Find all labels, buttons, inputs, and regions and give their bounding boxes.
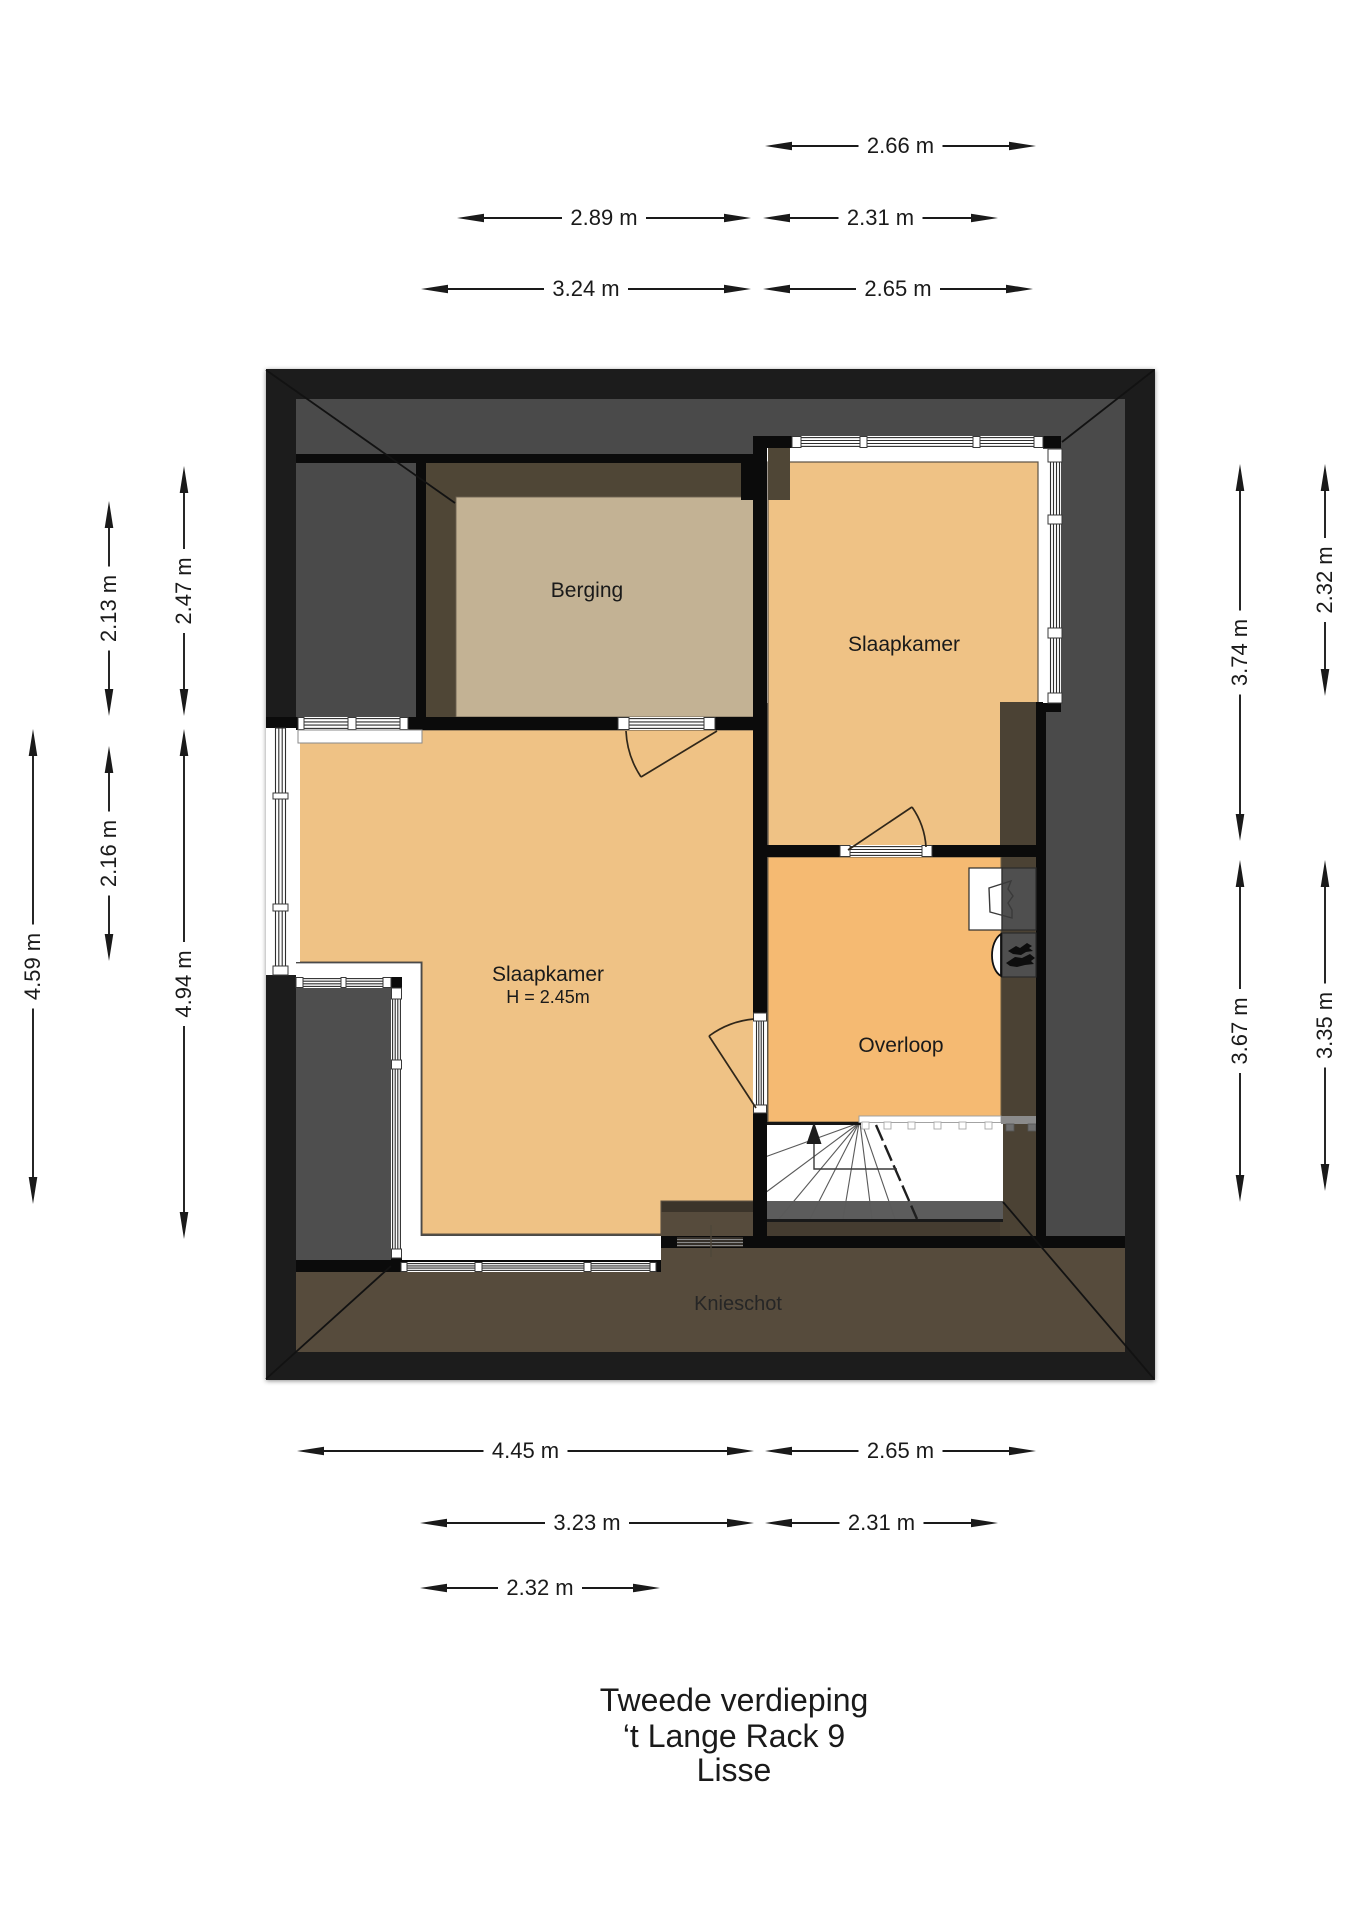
svg-text:H = 2.45m: H = 2.45m (506, 987, 590, 1007)
svg-text:2.65 m: 2.65 m (867, 1438, 934, 1463)
svg-text:Lisse: Lisse (697, 1752, 772, 1788)
svg-text:4.45 m: 4.45 m (492, 1438, 559, 1463)
svg-text:3.23 m: 3.23 m (553, 1510, 620, 1535)
svg-text:3.74 m: 3.74 m (1227, 619, 1252, 686)
svg-text:4.59 m: 4.59 m (20, 933, 45, 1000)
svg-text:2.32 m: 2.32 m (1312, 546, 1337, 613)
svg-text:2.65 m: 2.65 m (864, 276, 931, 301)
svg-text:Tweede verdieping: Tweede verdieping (600, 1682, 869, 1718)
svg-text:‘t Lange Rack 9: ‘t Lange Rack 9 (623, 1718, 845, 1754)
svg-text:Knieschot: Knieschot (694, 1293, 782, 1315)
svg-text:3.24 m: 3.24 m (552, 276, 619, 301)
svg-text:2.66 m: 2.66 m (867, 133, 934, 158)
svg-text:Overloop: Overloop (858, 1034, 943, 1057)
svg-text:3.67 m: 3.67 m (1227, 997, 1252, 1064)
svg-text:2.16 m: 2.16 m (96, 820, 121, 887)
svg-text:2.32 m: 2.32 m (506, 1575, 573, 1600)
svg-text:2.89 m: 2.89 m (570, 205, 637, 230)
svg-text:Slaapkamer: Slaapkamer (492, 963, 604, 986)
svg-text:Berging: Berging (551, 579, 623, 602)
svg-text:2.13 m: 2.13 m (96, 575, 121, 642)
svg-text:2.47 m: 2.47 m (171, 557, 196, 624)
svg-text:3.35 m: 3.35 m (1312, 992, 1337, 1059)
svg-text:4.94 m: 4.94 m (171, 950, 196, 1017)
svg-text:Slaapkamer: Slaapkamer (848, 633, 960, 656)
svg-text:2.31 m: 2.31 m (847, 205, 914, 230)
svg-text:2.31 m: 2.31 m (848, 1510, 915, 1535)
